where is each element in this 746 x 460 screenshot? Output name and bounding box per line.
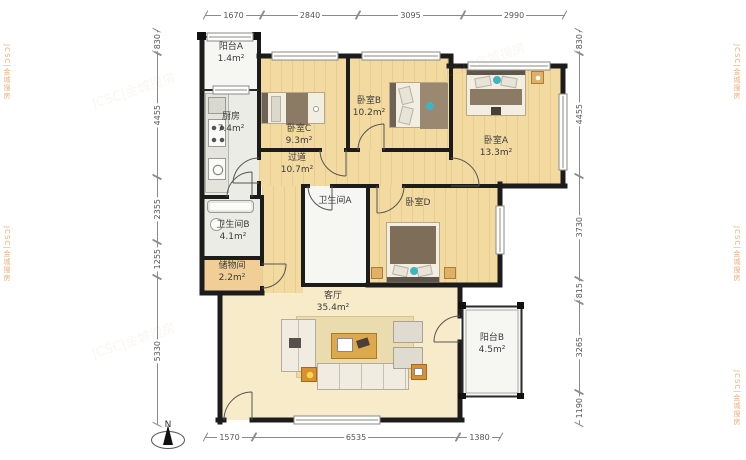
- walls-windows-doors: [0, 0, 746, 460]
- ruler-top: 1670 2840 3095 2990: [205, 8, 565, 22]
- room-label-bedroom-a: 卧室A13.3m²: [480, 136, 512, 159]
- dim-segment: 1255: [150, 242, 164, 277]
- room-label-bedroom-c: 卧室C9.3m²: [286, 124, 313, 147]
- watermark: JCSC|金城搜房: [732, 370, 742, 426]
- north-compass-icon: [151, 431, 185, 449]
- dim-segment: 1380: [458, 430, 501, 444]
- doors: [224, 124, 479, 420]
- dim-segment: 1570: [205, 430, 254, 444]
- north-needle-icon: [163, 425, 173, 445]
- dim-segment: 2990: [463, 8, 565, 22]
- room-label-balcony-a: 阳台A1.4m²: [218, 42, 245, 65]
- ruler-bottom: 1570 6535 1380: [205, 430, 501, 444]
- room-label-storage: 储物间2.2m²: [218, 261, 245, 284]
- dim-segment: 1670: [205, 8, 262, 22]
- room-label-living-room: 客厅35.4m²: [317, 291, 349, 314]
- dim-segment: 4455: [150, 53, 164, 177]
- walls-exterior: [202, 36, 565, 422]
- room-label-bathroom-a: 卫生间A: [318, 196, 351, 208]
- dim-segment: 2840: [262, 8, 358, 22]
- room-label-bathroom-b: 卫生间B4.1m²: [216, 220, 249, 243]
- ruler-left: 830 4455 2355 1255 5330: [150, 30, 164, 425]
- dim-segment: 830: [150, 30, 164, 53]
- room-label-balcony-b: 阳台B4.5m²: [479, 333, 506, 356]
- watermark: JCSC|金城搜房: [732, 226, 742, 282]
- dim-segment: 830: [572, 30, 586, 53]
- dim-segment: 6535: [254, 430, 458, 444]
- dim-segment: 4455: [572, 53, 586, 176]
- dim-segment: 2355: [150, 177, 164, 242]
- floor-plan-canvas: 阳台A1.4m² 厨房7.4m² 卧室C9.3m² 卧室B10.2m² 卧室A1…: [0, 0, 746, 460]
- dim-segment: 5330: [150, 277, 164, 425]
- walls-thin: [202, 37, 522, 397]
- dim-segment: 3265: [572, 302, 586, 392]
- dim-segment: 1190: [572, 392, 586, 425]
- dim-segment: 815: [572, 279, 586, 302]
- watermark: JCSC|金城搜房: [732, 44, 742, 100]
- watermark: JCSC|金城搜房: [2, 226, 12, 282]
- room-label-hallway: 过道10.7m²: [281, 153, 313, 176]
- room-label-bedroom-d: 卧室D: [406, 198, 431, 210]
- north-indicator: N: [150, 420, 186, 449]
- room-label-bedroom-b: 卧室B10.2m²: [353, 96, 385, 119]
- ruler-right: 830 4455 3730 815 3265 1190: [572, 30, 586, 425]
- dim-segment: 3730: [572, 176, 586, 279]
- watermark: JCSC|金城搜房: [2, 44, 12, 100]
- dim-segment: 3095: [358, 8, 463, 22]
- room-label-kitchen: 厨房7.4m²: [218, 112, 245, 135]
